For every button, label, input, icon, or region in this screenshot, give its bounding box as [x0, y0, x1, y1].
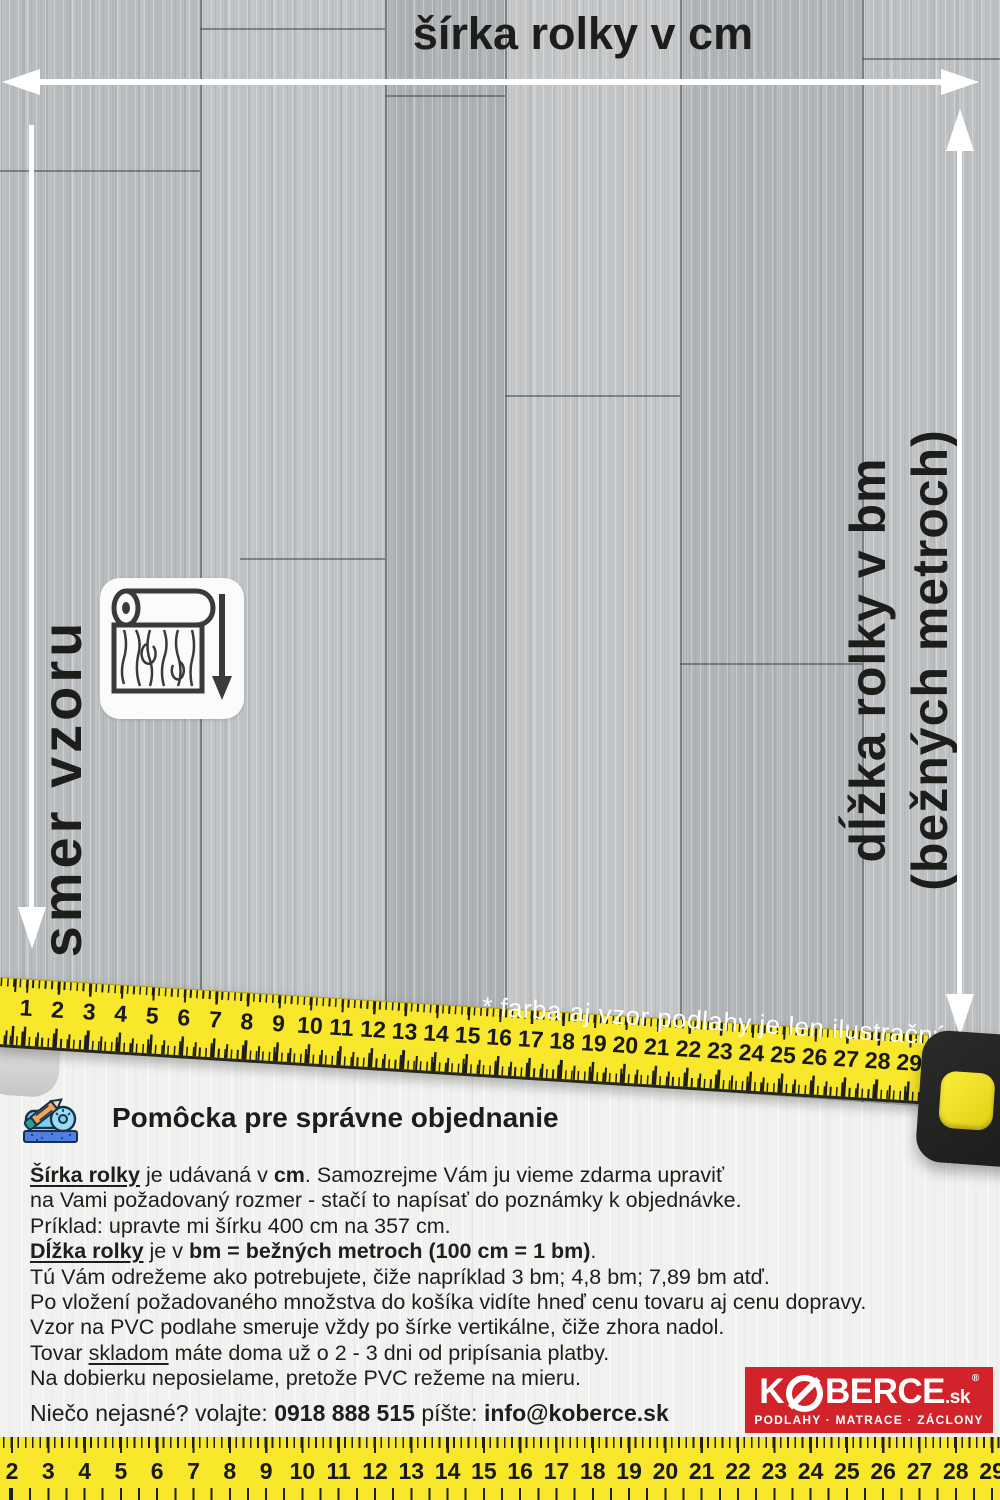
ruler-number: 21: [689, 1458, 715, 1485]
length-arrow: [957, 150, 962, 995]
ruler-number: 8: [223, 1458, 236, 1485]
bottom-ruler: 2345678910111213141516171819202122232425…: [0, 1437, 1000, 1500]
ruler-number: 27: [907, 1458, 933, 1485]
ruler-number: 17: [544, 1458, 570, 1485]
logo-tld: .sk: [945, 1385, 970, 1411]
ruler-number: 29: [896, 1049, 923, 1078]
ruler-number: 19: [616, 1458, 642, 1485]
ruler-number: 22: [675, 1035, 702, 1064]
ruler-number: 29: [979, 1458, 1000, 1485]
arrow-down-head: [18, 907, 46, 949]
plank-seam: [385, 95, 505, 97]
width-label: šírka rolky v cm: [333, 8, 833, 60]
ruler-number: 2: [50, 996, 64, 1024]
arrow-right-head: [941, 69, 979, 95]
tape-measure-case: [915, 1029, 1000, 1169]
ruler-number: 13: [391, 1017, 418, 1046]
help-text: Šírka rolky je udávaná v cm. Samozrejme …: [30, 1163, 995, 1392]
logo-k: K: [759, 1375, 784, 1409]
help-text-segment: Vzor na PVC podlahe smeruje vždy po šírk…: [30, 1315, 724, 1339]
plank-seam: [862, 58, 1000, 60]
help-text-line: Vzor na PVC podlahe smeruje vždy po šírk…: [30, 1315, 995, 1340]
ruler-number: 10: [296, 1012, 323, 1041]
ruler-number: 7: [187, 1458, 200, 1485]
help-text-segment: Po vložení požadovaného množstva do koší…: [30, 1290, 866, 1314]
ruler-number: 21: [643, 1033, 670, 1062]
roll-direction-icon: [100, 578, 244, 719]
length-label: dĺžka rolky v bm (bežných metroch): [837, 380, 973, 940]
koberce-logo: KBERCE.sk® PODLAHY · MATRACE · ZÁCLONY: [745, 1367, 993, 1433]
plank-seam: [240, 558, 385, 560]
logo-berce: BERCE: [825, 1375, 945, 1409]
help-text-line: Príklad: upravte mi šírku 400 cm na 357 …: [30, 1214, 995, 1239]
help-text-segment: . Samozrejme Vám ju vieme zdarma upraviť: [305, 1163, 724, 1187]
help-text-segment: Šírka rolky: [30, 1163, 140, 1187]
ruler-number: 16: [486, 1023, 513, 1052]
ruler-number: 7: [208, 1006, 222, 1034]
ruler-number: 24: [798, 1458, 824, 1485]
ruler-number: 17: [517, 1025, 544, 1054]
ruler-number: 3: [42, 1458, 55, 1485]
ruler-number: 11: [327, 1458, 351, 1485]
ruler-number: 4: [114, 1000, 128, 1028]
logo-slashed-o-icon: [786, 1375, 823, 1412]
ruler-number: 9: [271, 1010, 285, 1038]
help-text-segment: Tovar: [30, 1341, 89, 1365]
help-text-line: Tú Vám odrežeme ako potrebujete, čiže na…: [30, 1265, 995, 1290]
help-text-segment: bm = bežných metroch (100 cm = 1 bm): [189, 1239, 590, 1263]
ruler-number: 10: [290, 1458, 316, 1485]
help-text-line: Šírka rolky je udávaná v cm. Samozrejme …: [30, 1163, 995, 1188]
help-text-segment: máte doma už o 2 - 3 dni od pripísania p…: [169, 1341, 610, 1365]
ordering-helper-icon: [20, 1086, 80, 1148]
ruler-number: 13: [399, 1458, 425, 1485]
tape-case-button: [938, 1070, 996, 1131]
ruler-number: 23: [706, 1037, 733, 1066]
help-text-segment: cm: [274, 1163, 305, 1187]
ruler-number: 26: [870, 1458, 896, 1485]
help-text-line: Tovar skladom máte doma už o 2 - 3 dni o…: [30, 1341, 995, 1366]
logo-wordmark: KBERCE.sk®: [759, 1374, 979, 1411]
ruler-number: 26: [801, 1043, 828, 1072]
help-text-segment: na Vami požadovaný rozmer - stačí to nap…: [30, 1188, 742, 1212]
help-text-line: Po vložení požadovaného množstva do koší…: [30, 1290, 995, 1315]
arrow-left-head: [2, 69, 40, 95]
ruler-number: 16: [507, 1458, 533, 1485]
ruler-number: 6: [151, 1458, 164, 1485]
ruler-number: 20: [612, 1031, 639, 1060]
contact-prefix: Niečo nejasné? volajte:: [30, 1400, 268, 1426]
help-text-segment: je v: [144, 1239, 189, 1263]
help-text-line: Dĺžka rolky je v bm = bežných metroch (1…: [30, 1239, 995, 1264]
help-text-segment: skladom: [89, 1341, 169, 1365]
help-text-segment: Príklad: upravte mi šírku 400 cm na 357 …: [30, 1214, 451, 1238]
ruler-number: 27: [833, 1045, 860, 1074]
ruler-number: 8: [240, 1008, 254, 1036]
ruler-number: 1: [19, 994, 33, 1022]
help-text-line: na Vami požadovaný rozmer - stačí to nap…: [30, 1188, 995, 1213]
ruler-number: 5: [114, 1458, 127, 1485]
ruler-number: 22: [725, 1458, 751, 1485]
arrow-up-head: [946, 109, 974, 151]
ruler-number: 9: [260, 1458, 273, 1485]
length-label-line1: dĺžka rolky v bm: [837, 380, 899, 940]
logo-tagline: PODLAHY · MATRACE · ZÁCLONY: [754, 1413, 983, 1427]
ruler-number: 14: [423, 1019, 450, 1048]
ruler-number: 20: [653, 1458, 679, 1485]
ruler-number: 3: [82, 998, 96, 1026]
flooring-roll-icon: [100, 578, 244, 719]
ruler-number: 28: [864, 1047, 891, 1076]
ruler-number: 19: [580, 1029, 607, 1058]
ruler-number: 18: [549, 1027, 576, 1056]
contact-phone: 0918 888 515: [274, 1400, 415, 1426]
ruler-number: 18: [580, 1458, 606, 1485]
floor-plank: [505, 0, 682, 1130]
ruler-number: 28: [943, 1458, 969, 1485]
contact-write-label: píšte:: [421, 1400, 477, 1426]
length-label-line2: (bežných metroch): [899, 380, 961, 940]
floor-plank: [385, 0, 507, 1130]
ruler-number: 14: [435, 1458, 461, 1485]
registered-mark: ®: [972, 1374, 979, 1384]
help-text-segment: Na dobierku neposielame, pretože PVC rež…: [30, 1366, 581, 1390]
help-text-segment: Tú Vám odrežeme ako potrebujete, čiže na…: [30, 1265, 770, 1289]
ruler-number: 4: [78, 1458, 91, 1485]
ruler-number: 12: [359, 1015, 386, 1044]
pattern-direction-arrow: [29, 125, 34, 908]
help-text-segment: .: [590, 1239, 596, 1263]
floor-plank: [200, 0, 387, 1130]
ruler-number: 6: [177, 1004, 191, 1032]
width-arrow: [38, 79, 943, 85]
ruler-number: 15: [471, 1458, 497, 1485]
ruler-number: 25: [834, 1458, 860, 1485]
ruler-number: 15: [454, 1021, 481, 1050]
contact-line: Niečo nejasné? volajte: 0918 888 515 píš…: [30, 1400, 669, 1427]
help-text-segment: je udávaná v: [140, 1163, 274, 1187]
ruler-number: 5: [145, 1002, 159, 1030]
ruler-number: 25: [769, 1041, 796, 1070]
plank-seam: [680, 663, 862, 665]
ruler-number: 12: [362, 1458, 388, 1485]
ruler-number: 2: [6, 1458, 19, 1485]
help-text-segment: Dĺžka rolky: [30, 1239, 144, 1263]
ruler-number: 23: [762, 1458, 788, 1485]
contact-email: info@koberce.sk: [484, 1400, 669, 1426]
ruler-number: 24: [738, 1039, 765, 1068]
infographic-page: šírka rolky v cm smer vzoru dĺžka rolky …: [0, 0, 1000, 1500]
help-heading: Pomôcka pre správne objednanie: [112, 1102, 559, 1134]
plank-seam: [505, 395, 680, 397]
ruler-number: 11: [329, 1014, 355, 1042]
